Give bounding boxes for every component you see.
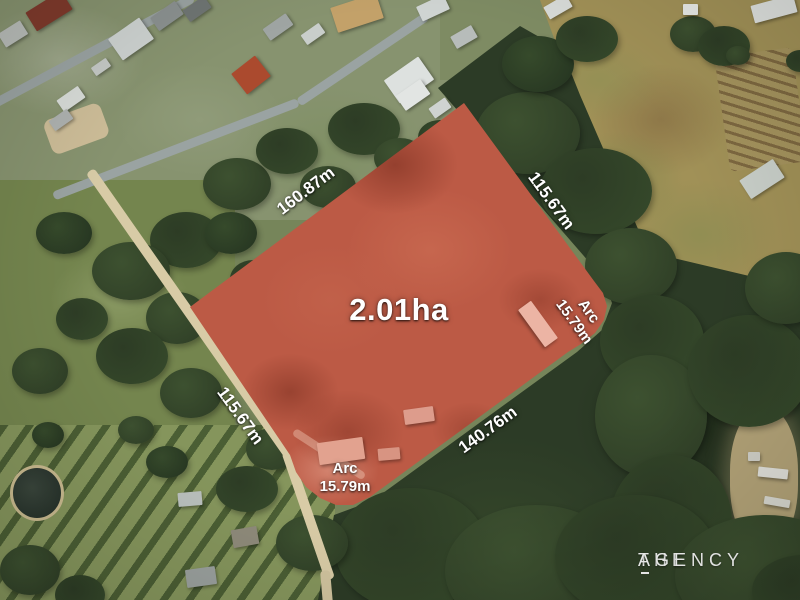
arc-label-south-line1: Arc <box>320 460 371 478</box>
building-roof <box>91 58 111 77</box>
building-roof <box>0 20 28 47</box>
building-roof <box>108 17 154 60</box>
building-roof <box>330 0 384 33</box>
building-roof <box>416 0 450 22</box>
satellite-map: 160.87m 115.67m 115.67m 140.76m Arc 15.7… <box>0 0 800 600</box>
agency-watermark-post: GENCY <box>655 550 744 571</box>
building-roof <box>185 566 217 588</box>
building-roof <box>56 86 85 112</box>
building-roof <box>758 466 789 479</box>
building-roof <box>25 0 72 31</box>
building-roof <box>450 25 478 49</box>
agency-watermark: THE AGENCY <box>638 550 655 571</box>
area-label: 2.01ha <box>349 292 449 328</box>
building-roof <box>764 496 791 508</box>
building-roof <box>177 491 202 507</box>
building-roof <box>301 23 326 45</box>
building-roof <box>739 159 785 199</box>
building-roof <box>231 56 271 95</box>
building-roof <box>182 0 211 22</box>
building-roof <box>750 0 797 23</box>
building-roof <box>683 4 698 15</box>
building-roof <box>748 452 760 461</box>
building-roof <box>49 109 74 131</box>
building-roof <box>150 1 184 31</box>
outbuilding-roof <box>378 447 401 461</box>
agency-watermark-a: A <box>638 550 655 571</box>
building-roof <box>543 0 573 20</box>
building-roof <box>231 526 260 548</box>
arc-label-south-line2: 15.79m <box>320 478 371 496</box>
arc-label-south: Arc 15.79m <box>320 460 371 496</box>
building-roof <box>263 13 294 41</box>
